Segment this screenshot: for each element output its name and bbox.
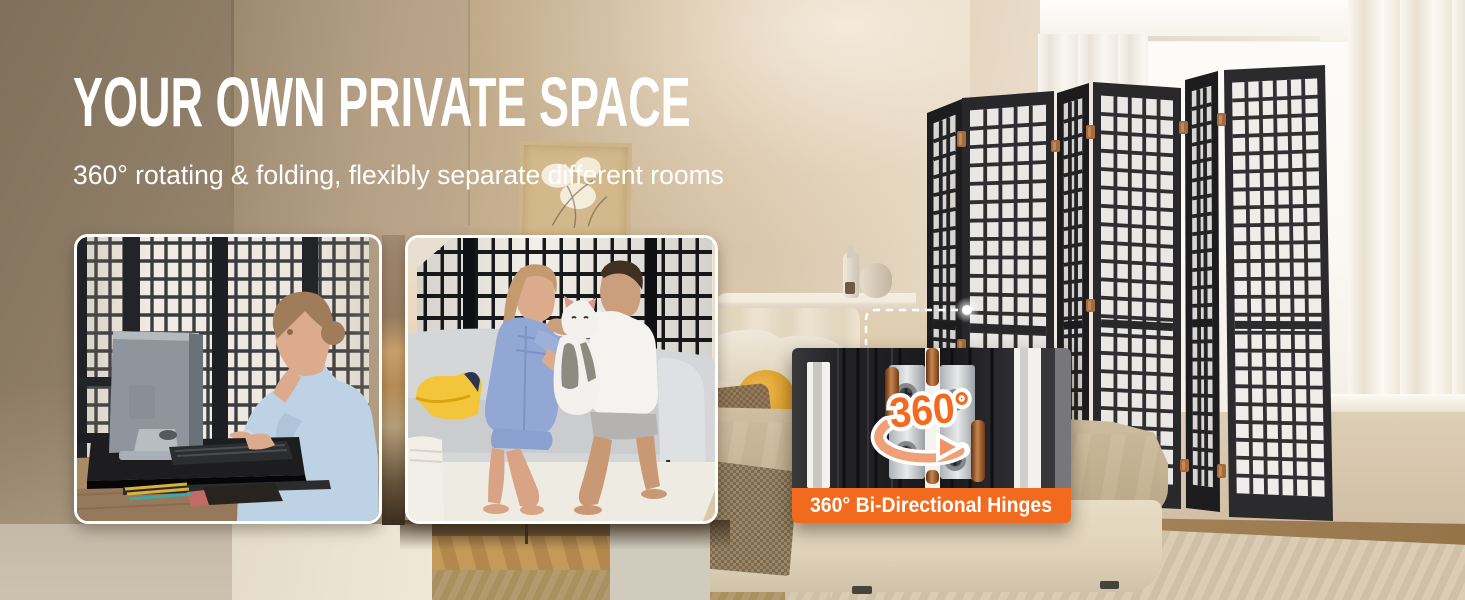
svg-text:360° Bi-Directional Hinges: 360° Bi-Directional Hinges bbox=[810, 493, 1052, 517]
svg-text:360°: 360° bbox=[888, 382, 973, 436]
